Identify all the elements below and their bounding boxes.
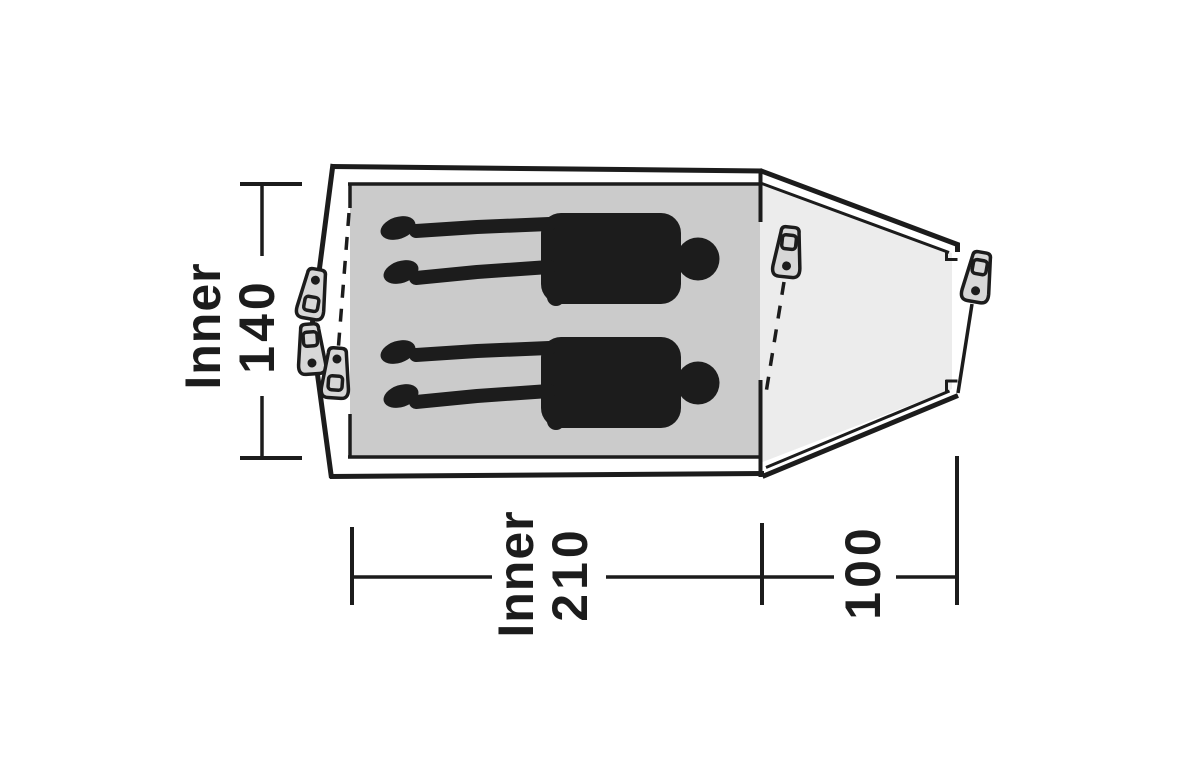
dimension-porch-depth: 100 bbox=[762, 456, 957, 620]
dimension-label-value: 100 bbox=[835, 524, 891, 619]
dimension-inner-length: Inner 210 bbox=[352, 510, 762, 637]
tent-peg-icon bbox=[960, 250, 995, 304]
inner-door-dashed-line bbox=[338, 213, 349, 352]
diagram-page: Inner 140 Inner 210 100 bbox=[0, 0, 1200, 766]
rear-guy-line bbox=[958, 304, 972, 393]
dimension-inner-width: Inner 140 bbox=[175, 184, 302, 458]
dimension-label-word: Inner bbox=[175, 262, 231, 389]
tent-peg-icon bbox=[295, 267, 330, 321]
dimension-label-word: Inner bbox=[488, 510, 544, 637]
diagram-canvas: Inner 140 Inner 210 100 bbox=[0, 0, 1200, 766]
dimension-label-value: 140 bbox=[229, 278, 285, 373]
dimension-label-value: 210 bbox=[542, 526, 598, 621]
tent-peg-icon bbox=[296, 323, 327, 375]
